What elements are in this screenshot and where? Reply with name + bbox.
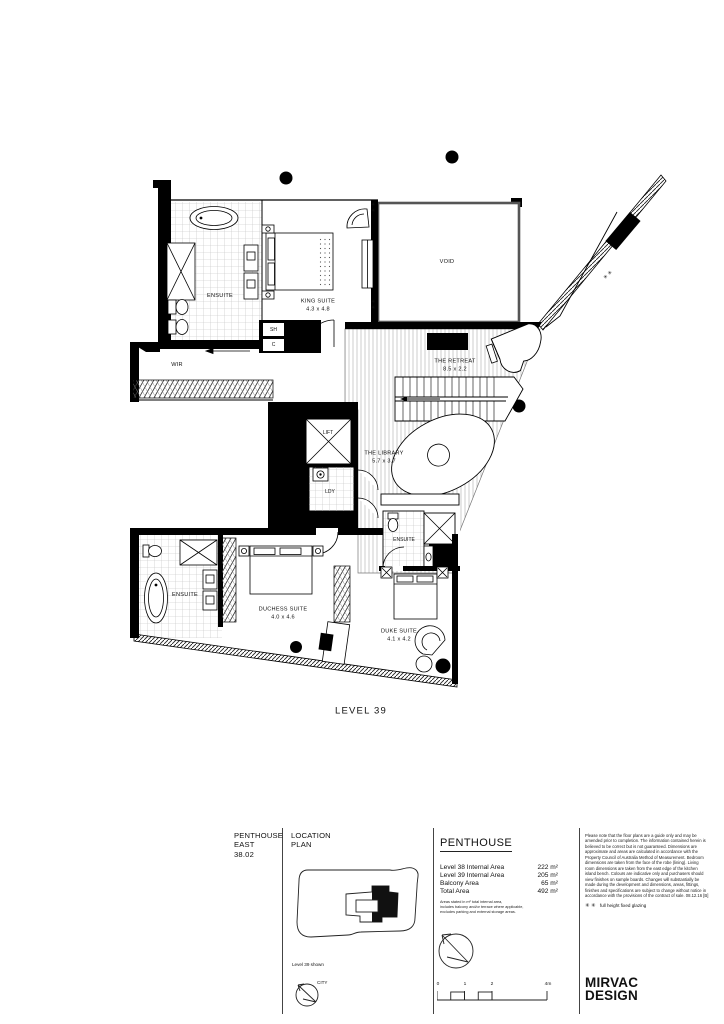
- titleblock-divider-1: [282, 828, 283, 1014]
- room-label-sh: SH: [270, 327, 277, 333]
- tv-joinery-icon: [427, 333, 468, 350]
- joinery-unit: [381, 494, 459, 505]
- glazing-legend-text: full height fixed glazing: [600, 903, 646, 908]
- glazing-stars-2: ✳ ✳: [371, 300, 375, 312]
- location-plan-block: LOCATION PLAN: [291, 831, 429, 850]
- titleblock-divider-3: [579, 828, 580, 1014]
- room-label-void: VOID: [440, 259, 455, 267]
- disclaimer-text: Please note that the floor plans are a g…: [585, 833, 709, 898]
- door-swing-arrow: [206, 349, 250, 354]
- city-compass-label: CITY: [317, 980, 327, 985]
- column-marker-1: [280, 172, 293, 185]
- area-notes: Areas stated in m² total internal area, …: [440, 900, 576, 914]
- bedside-table-1: [262, 225, 274, 233]
- apartment-name-line2: EAST: [234, 840, 279, 849]
- room-label-lift: LIFT: [323, 430, 333, 436]
- disclaimer-block: Please note that the floor plans are a g…: [585, 833, 709, 898]
- floorplan-sheet: ENSUITE KING SUITE4.3 x 4.8 VOID WIR SH …: [0, 0, 724, 1024]
- toilet-icon: [168, 300, 188, 315]
- glazing-legend: ✳ ✳ full height fixed glazing: [585, 903, 646, 909]
- side-table-round: [416, 656, 432, 672]
- room-label-ldy: LDY: [325, 489, 335, 495]
- location-plan-title-line2: PLAN: [291, 840, 429, 849]
- area-row-level39: Level 39 Internal Area205 m²: [440, 872, 558, 880]
- armchair-icon: [347, 209, 369, 228]
- glazing-stars-1: ✳ ✳: [371, 203, 375, 215]
- room-label-library: THE LIBRARY5.7 x 3.7: [364, 450, 403, 465]
- duchess-furniture: [222, 538, 350, 664]
- level-caption: LEVEL 39: [335, 706, 387, 717]
- area-row-level38: Level 38 Internal Area222 m²: [440, 864, 558, 872]
- bedside-table-duchess-2: [313, 546, 323, 556]
- room-label-c: C: [272, 342, 276, 348]
- room-label-ensuite-duchess: ENSUITE: [172, 592, 198, 600]
- location-plan-map: [288, 860, 430, 960]
- room-label-ensuite-duke: ENSUITE: [393, 537, 415, 543]
- bedside-table-duchess-1: [239, 546, 249, 556]
- toilet-icon-duchess: [143, 545, 162, 557]
- duke-furniture: [381, 567, 451, 674]
- room-label-wir: WIR: [171, 362, 183, 370]
- vanity-duke: [424, 546, 433, 568]
- bedside-table-2: [262, 291, 274, 299]
- mirvac-design-logo: MIRVAC DESIGN: [585, 977, 638, 1003]
- bedside-table-duke-1: [381, 567, 392, 578]
- room-label-retreat: THE RETREAT8.5 x 2.2: [434, 358, 475, 373]
- wir-zone: [130, 342, 273, 402]
- column-marker-2: [446, 151, 459, 164]
- north-compass: [432, 924, 478, 974]
- retreat-north-wall: [345, 322, 542, 329]
- location-plan-caption: Level 39 shown: [292, 962, 324, 967]
- room-label-duchess-suite: DUCHESS SUITE4.0 x 4.6: [259, 606, 308, 621]
- building-core: [356, 900, 378, 912]
- diagonal-glazing-band: [538, 175, 666, 330]
- toilet-icon-duke: [388, 513, 398, 532]
- bidet-icon: [168, 320, 188, 335]
- apartment-number: 38.02: [234, 850, 279, 859]
- location-plan-title-line1: LOCATION: [291, 831, 429, 840]
- room-label-ensuite-king: ENSUITE: [207, 293, 233, 301]
- titleblock-divider-2: [433, 828, 434, 1014]
- armchair-icon-duke: [415, 626, 445, 655]
- washing-machine-icon: [313, 468, 328, 481]
- balcony-planter: [605, 212, 640, 250]
- wir-robe-hatch: [133, 380, 273, 398]
- duchess-robe-hatch-2: [334, 566, 350, 622]
- west-wall-cap: [153, 180, 171, 188]
- column-duchess: [290, 641, 302, 653]
- room-label-king-suite: KING SUITE4.3 x 4.8: [301, 298, 335, 313]
- room-label-duke-suite: DUKE SUITE4.1 x 4.2: [381, 628, 417, 643]
- apartment-name-line1: PENTHOUSE: [234, 831, 279, 840]
- areas-heading: PENTHOUSE: [440, 837, 512, 852]
- area-row-balcony: Balcony Area65 m²: [440, 880, 558, 888]
- bedside-table-duke-2: [437, 567, 448, 578]
- side-table-dark: [436, 659, 451, 674]
- scale-bar: [437, 982, 557, 1006]
- duchess-robe-hatch: [222, 538, 236, 622]
- apartment-id-block: PENTHOUSE EAST 38.02: [234, 831, 279, 859]
- duke-ensuite: [379, 494, 460, 571]
- area-row-total: Total Area492 m²: [440, 888, 558, 896]
- glazing-legend-symbols: ✳ ✳: [585, 903, 596, 909]
- areas-block: PENTHOUSE Level 38 Internal Area222 m² L…: [440, 833, 576, 914]
- level-39-floorplan-drawing: [0, 0, 724, 780]
